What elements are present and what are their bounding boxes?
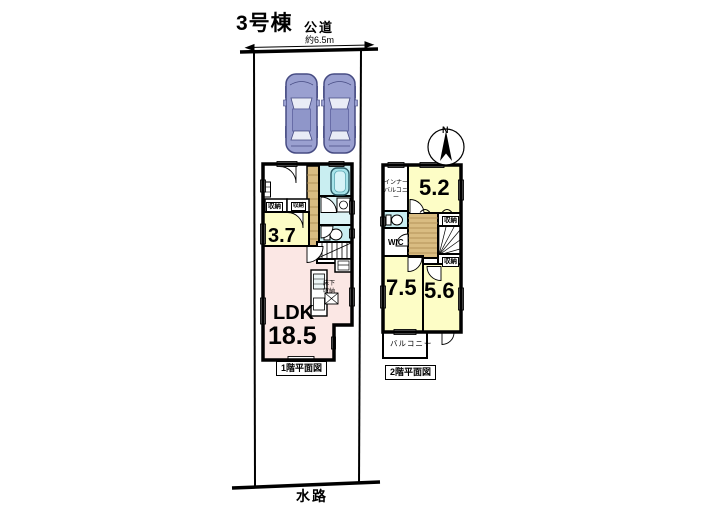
- closet-label: 収納: [266, 202, 283, 212]
- floorplan-sheet: 3号棟 公道 約6.5m 水路 N LDK 18.5 3.7 収納 収納 床下収…: [0, 0, 705, 525]
- inner-balcony-label: インナーバルコニー: [382, 180, 410, 203]
- wic-label: WIC: [388, 239, 404, 247]
- ldk-size-label: 18.5: [268, 324, 317, 349]
- road-width-label: 約6.5m: [305, 36, 334, 45]
- room52-size-label: 5.2: [419, 177, 450, 199]
- room37-size-label: 3.7: [268, 226, 296, 246]
- bathtub-inner: [335, 171, 346, 192]
- page-title: 3号棟: [236, 13, 293, 34]
- ldk-label: LDK: [273, 303, 314, 323]
- site-boundary-top: [240, 49, 378, 52]
- toilet-icon-2f: [386, 215, 403, 225]
- closet-label: 収納: [291, 202, 306, 211]
- site-boundary-right: [359, 50, 361, 484]
- closet-label: 収納: [442, 216, 459, 226]
- washbasin-icon: [337, 198, 350, 212]
- ldk-door-arc: [307, 247, 323, 263]
- waterway-label: 水路: [296, 489, 328, 503]
- car-icon: [284, 74, 320, 153]
- site-boundary-left: [254, 52, 255, 486]
- closet-label: 収納: [442, 257, 459, 267]
- room56-size-label: 5.6: [424, 280, 455, 302]
- underfloor-storage-label: 床下収納: [322, 281, 336, 296]
- room75-size-label: 7.5: [386, 277, 417, 299]
- road-label: 公道: [304, 21, 334, 34]
- car-icon: [322, 74, 358, 153]
- floor2-caption: 2階平面図: [385, 365, 436, 380]
- floor1-caption: 1階平面図: [276, 361, 327, 376]
- compass-north-label: N: [442, 126, 449, 135]
- winder-stairs-2f: [438, 226, 461, 256]
- fridge-icon: [338, 261, 349, 270]
- balcony-label: バルコニー: [390, 340, 432, 348]
- stairs-2f: [408, 213, 438, 258]
- balcony-door-arc: [442, 333, 454, 345]
- floorplan-drawing: [0, 0, 705, 525]
